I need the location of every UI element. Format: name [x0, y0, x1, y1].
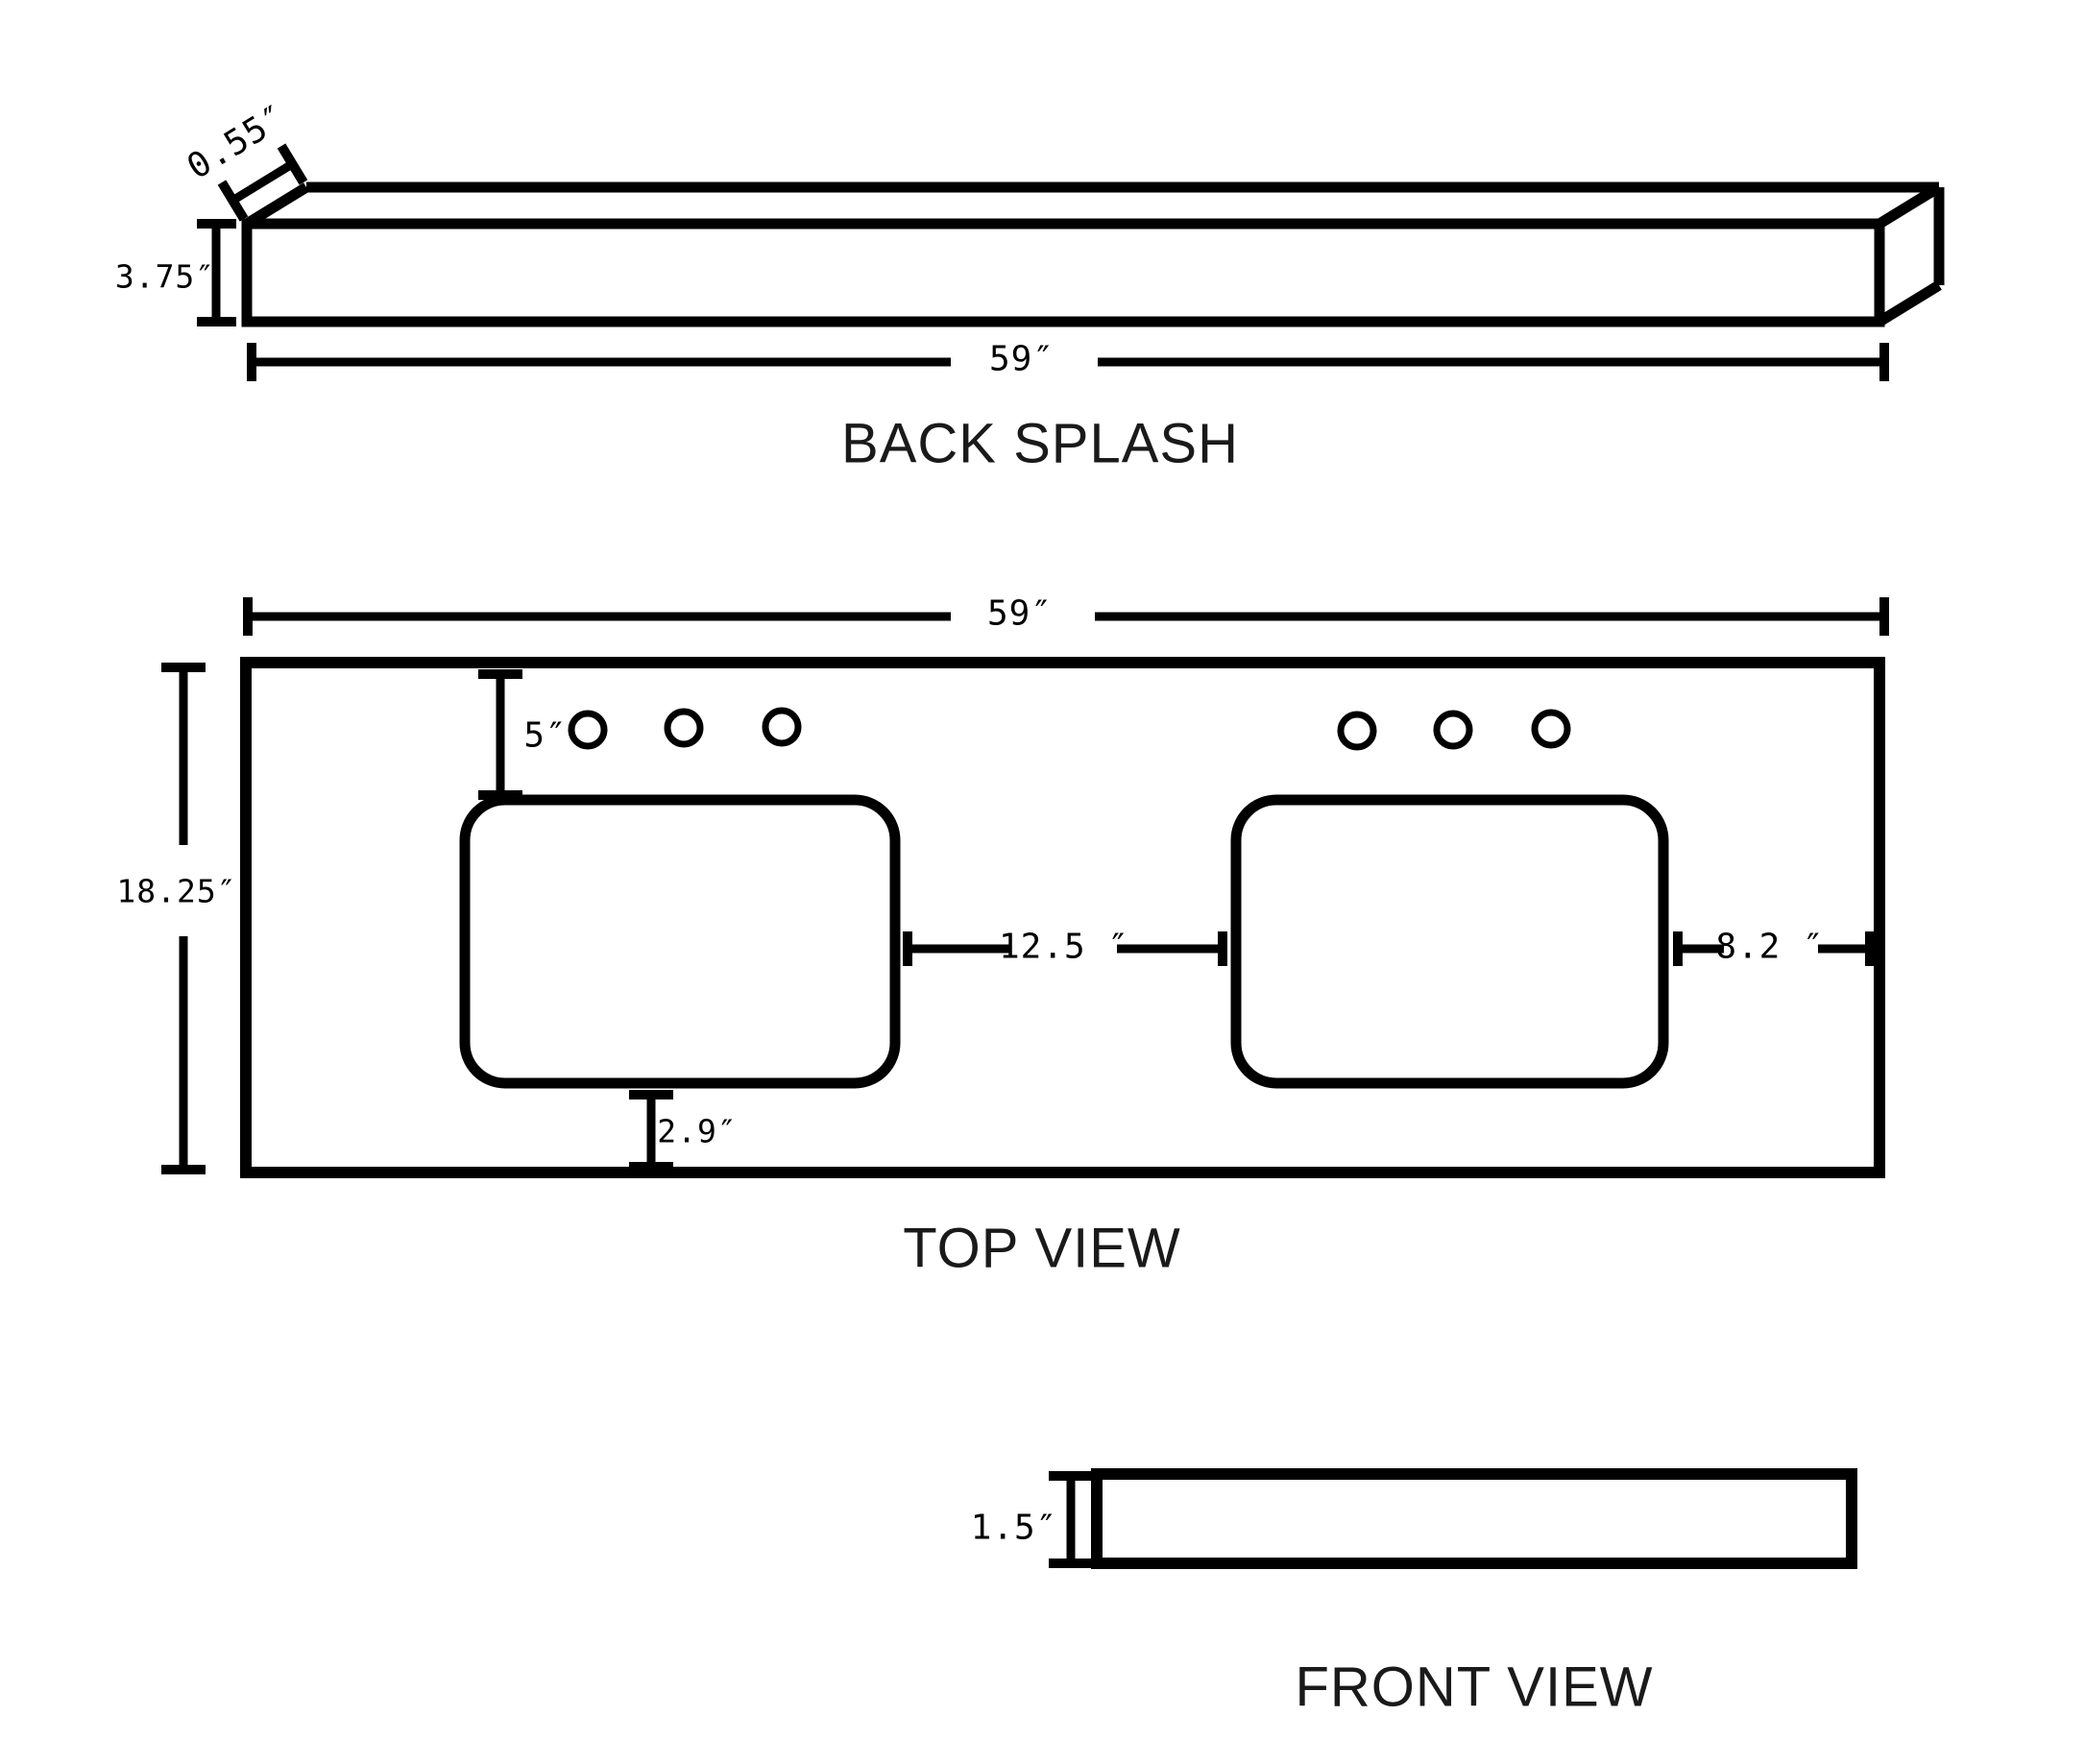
top-view: 59″ 18.25″ 5″: [116, 594, 1884, 1280]
dim-front-thickness-label: 1.5″: [971, 1509, 1058, 1548]
backsplash-title: BACK SPLASH: [841, 413, 1239, 475]
front-view-title: FRONT VIEW: [1295, 1656, 1653, 1719]
dim-backsplash-width: 59″: [252, 340, 1884, 382]
dim-between-sinks-label: 12.5 ″: [999, 928, 1129, 967]
faucet-hole: [1535, 713, 1567, 745]
dim-topview-depth-label: 18.25″: [116, 873, 236, 910]
dim-backsplash-width-label: 59″: [989, 340, 1055, 379]
dim-faucet-setback: 5″: [478, 674, 568, 795]
dim-backsplash-height: 3.75″: [115, 224, 236, 322]
technical-drawing-page: 0.55″ 3.75″ 59″ BACK SPLASH 59″: [0, 0, 2085, 1764]
faucet-hole: [1437, 713, 1469, 746]
faucet-holes-right: [1341, 713, 1567, 747]
dim-backsplash-depth-line: [232, 164, 292, 201]
dim-faucet-setback-label: 5″: [523, 716, 567, 756]
dim-sink-to-right-edge: 8.2 ″: [1678, 928, 1870, 967]
dim-topview-depth: 18.25″: [116, 667, 236, 1170]
backsplash-end-cap-bottom-edge: [1879, 285, 1939, 322]
backsplash-end-cap-top-edge: [1879, 187, 1939, 224]
dim-front-thickness: 1.5″: [971, 1476, 1093, 1563]
faucet-hole: [765, 711, 798, 743]
dim-topview-width: 59″: [248, 594, 1884, 637]
dim-backsplash-height-label: 3.75″: [115, 258, 215, 296]
faucet-hole: [667, 712, 700, 744]
countertop-outline: [246, 663, 1879, 1172]
dim-between-sinks: 12.5 ″: [908, 928, 1223, 967]
top-view-title: TOP VIEW: [903, 1218, 1180, 1280]
sink-cutout-left: [465, 800, 895, 1083]
backsplash-view: 0.55″ 3.75″ 59″ BACK SPLASH: [115, 97, 1939, 475]
faucet-holes-left: [571, 711, 798, 746]
dim-topview-width-label: 59″: [987, 594, 1053, 634]
dim-sink-to-right-edge-label: 8.2 ″: [1715, 928, 1824, 967]
faucet-hole: [1341, 714, 1373, 747]
sink-cutout-right: [1236, 800, 1663, 1083]
backsplash-front-face: [247, 224, 1879, 322]
front-view: 1.5″ FRONT VIEW: [971, 1474, 1852, 1719]
faucet-hole: [571, 713, 604, 746]
backsplash-top-face-left-edge: [247, 187, 306, 224]
front-view-outline: [1097, 1474, 1852, 1563]
dim-sink-to-front-edge: 2.9″: [629, 1095, 738, 1167]
dim-sink-to-front-edge-label: 2.9″: [657, 1113, 737, 1150]
